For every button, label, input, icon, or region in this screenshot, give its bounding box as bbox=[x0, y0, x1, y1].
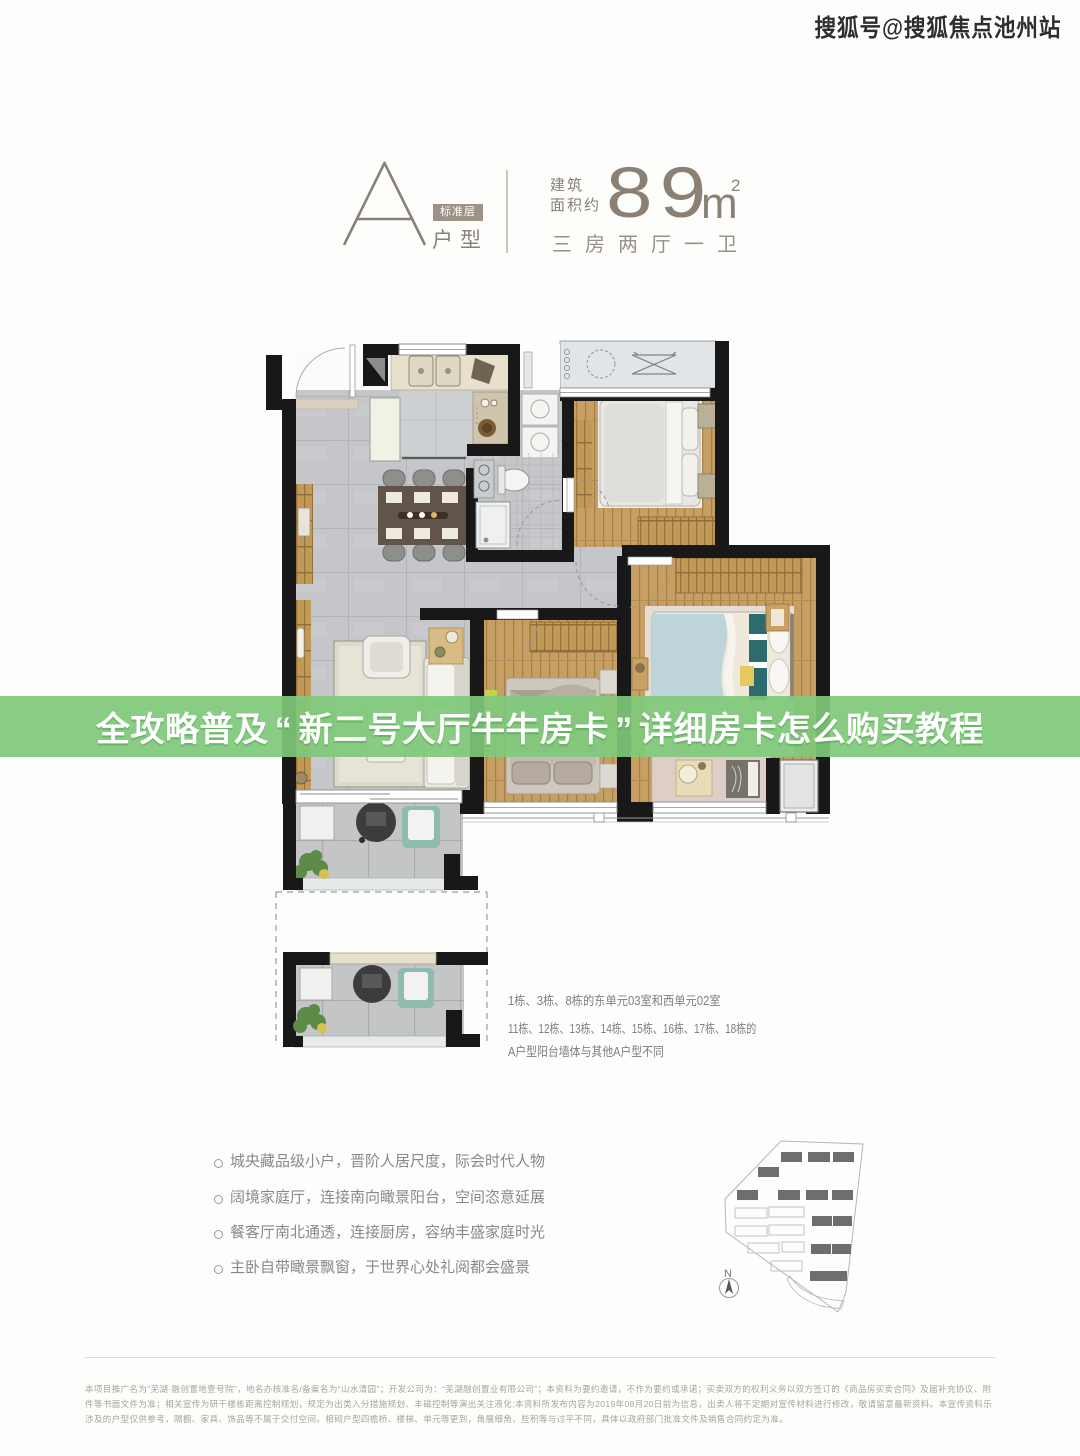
svg-text:N: N bbox=[724, 1268, 732, 1280]
